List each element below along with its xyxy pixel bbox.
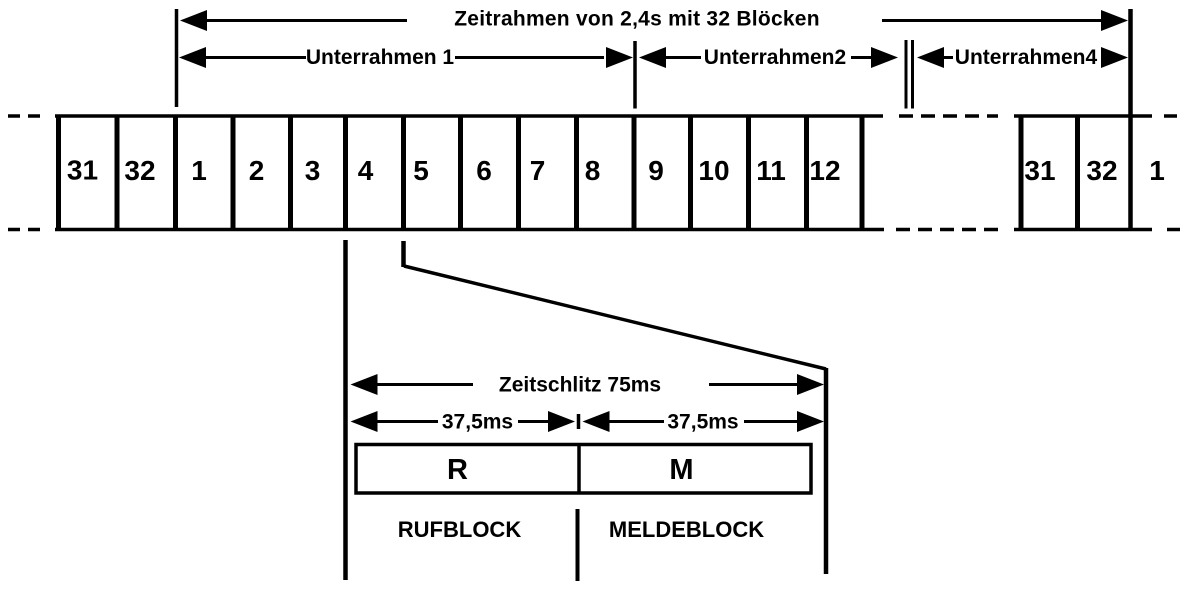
svg-text:12: 12 <box>809 155 840 186</box>
svg-text:31: 31 <box>1024 155 1055 186</box>
svg-text:M: M <box>669 454 693 486</box>
svg-text:2: 2 <box>249 155 265 186</box>
svg-text:Unterrahmen2: Unterrahmen2 <box>704 46 846 69</box>
svg-text:37,5ms: 37,5ms <box>442 411 513 434</box>
svg-text:9: 9 <box>648 155 664 186</box>
svg-text:Unterrahmen4: Unterrahmen4 <box>955 46 1098 69</box>
svg-text:31: 31 <box>67 155 98 186</box>
svg-text:Zeitrahmen von 2,4s mit 32 Blö: Zeitrahmen von 2,4s mit 32 Blöcken <box>454 8 820 31</box>
svg-text:R: R <box>447 454 468 486</box>
svg-text:3: 3 <box>305 155 321 186</box>
svg-text:11: 11 <box>756 155 786 186</box>
svg-text:1: 1 <box>1149 155 1165 186</box>
svg-text:5: 5 <box>413 155 429 186</box>
svg-text:8: 8 <box>585 155 601 186</box>
svg-text:32: 32 <box>1086 155 1117 186</box>
svg-text:7: 7 <box>530 155 546 186</box>
svg-text:MELDEBLOCK: MELDEBLOCK <box>609 517 764 542</box>
svg-text:32: 32 <box>124 155 155 186</box>
svg-text:37,5ms: 37,5ms <box>667 411 738 434</box>
svg-text:1: 1 <box>191 155 207 186</box>
svg-text:Unterrahmen 1: Unterrahmen 1 <box>306 46 455 69</box>
svg-text:RUFBLOCK: RUFBLOCK <box>398 517 522 542</box>
svg-text:Zeitschlitz 75ms: Zeitschlitz 75ms <box>499 374 661 397</box>
svg-text:6: 6 <box>476 155 492 186</box>
svg-text:10: 10 <box>698 155 729 186</box>
svg-text:4: 4 <box>358 155 374 186</box>
